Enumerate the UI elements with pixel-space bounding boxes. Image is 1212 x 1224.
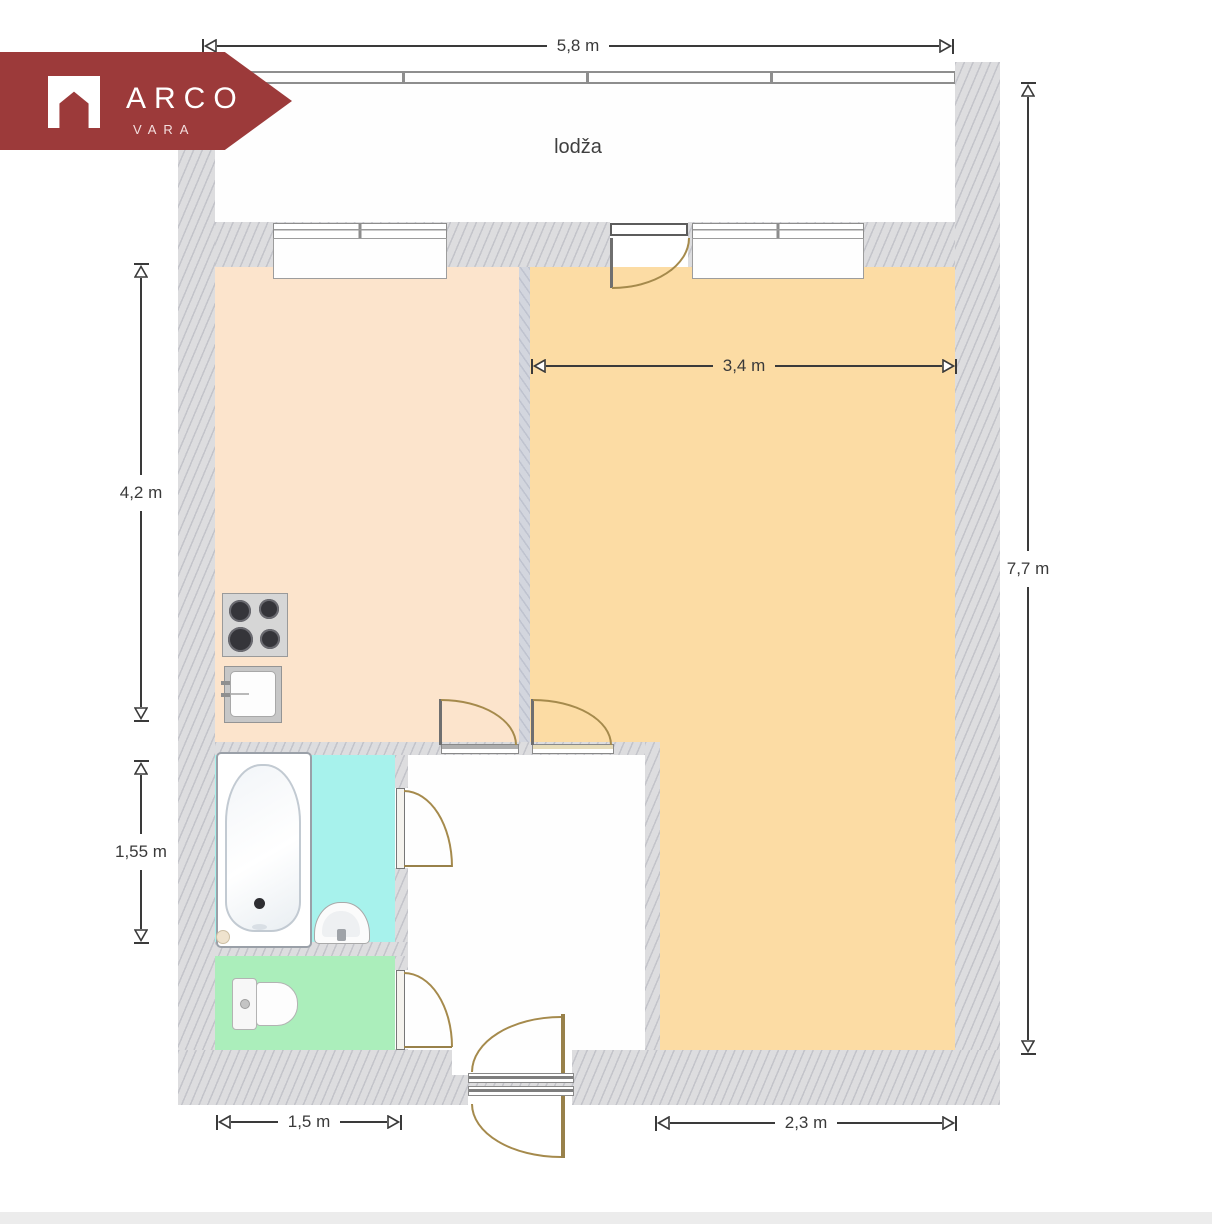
room-living-lower xyxy=(660,742,955,1050)
kitchen-window-sill xyxy=(273,238,447,279)
wall-hall-living xyxy=(645,742,660,1050)
stove-burner xyxy=(228,627,253,652)
balcony-door-frame xyxy=(610,223,688,236)
dimension-apartment-depth: 7,7 m xyxy=(993,82,1063,1055)
stove-burner xyxy=(259,599,279,619)
dimension-wc-width: 1,5 m xyxy=(216,1112,402,1132)
house-icon xyxy=(48,76,100,128)
logo-title: ARCO xyxy=(126,82,245,116)
bathroom-door-open-leaf xyxy=(404,865,452,867)
living-room-window-sill xyxy=(692,238,864,279)
toilet xyxy=(232,978,296,1028)
kitchen-sink xyxy=(224,666,282,723)
dimension-bathroom-depth: 1,55 m xyxy=(106,760,176,944)
living-room-window xyxy=(692,223,864,239)
stove-burner xyxy=(260,629,280,649)
footer-strip xyxy=(0,1212,1212,1224)
wc-door-open-leaf xyxy=(404,1046,452,1048)
dimension-living-bottom-width: 2,3 m xyxy=(655,1113,957,1133)
entrance-threshold-outer xyxy=(468,1073,574,1083)
stove-burner xyxy=(229,600,251,622)
loggia-glazing xyxy=(218,71,955,84)
loggia-label: lodža xyxy=(518,136,638,159)
dimension-label: 2,3 m xyxy=(775,1113,838,1133)
dimension-kitchen-depth: 4,2 m xyxy=(106,263,176,722)
wall-left xyxy=(178,62,215,1105)
dimension-living-width: 3,4 m xyxy=(531,356,957,376)
dimension-label: 7,7 m xyxy=(1007,551,1050,587)
dimension-label: 3,4 m xyxy=(713,356,776,376)
entrance-door-leaf-outer xyxy=(561,1096,565,1158)
bathtub xyxy=(216,752,312,948)
logo-subtitle: VARA xyxy=(133,122,195,137)
floorplan-page: 5,8 m 3,4 m 4,2 m 1,55 m 7,7 xyxy=(0,0,1212,1224)
wall-kitchen-living xyxy=(519,267,530,755)
dimension-loggia-width: 5,8 m xyxy=(202,36,954,56)
dimension-label: 1,5 m xyxy=(278,1112,341,1132)
living-door-threshold xyxy=(532,744,614,754)
dimension-label: 5,8 m xyxy=(547,36,610,56)
entrance-door-leaf-inner xyxy=(561,1014,565,1073)
entrance-door-swing-outer xyxy=(471,1104,561,1158)
dimension-label: 1,55 m xyxy=(115,834,167,870)
dimension-label: 4,2 m xyxy=(120,475,163,511)
kitchen-window xyxy=(273,223,447,239)
entrance-threshold-inner xyxy=(468,1086,574,1096)
wall-bottom xyxy=(178,1050,1000,1105)
stove xyxy=(222,593,288,657)
room-living xyxy=(530,267,955,750)
kitchen-door-threshold xyxy=(441,744,519,754)
